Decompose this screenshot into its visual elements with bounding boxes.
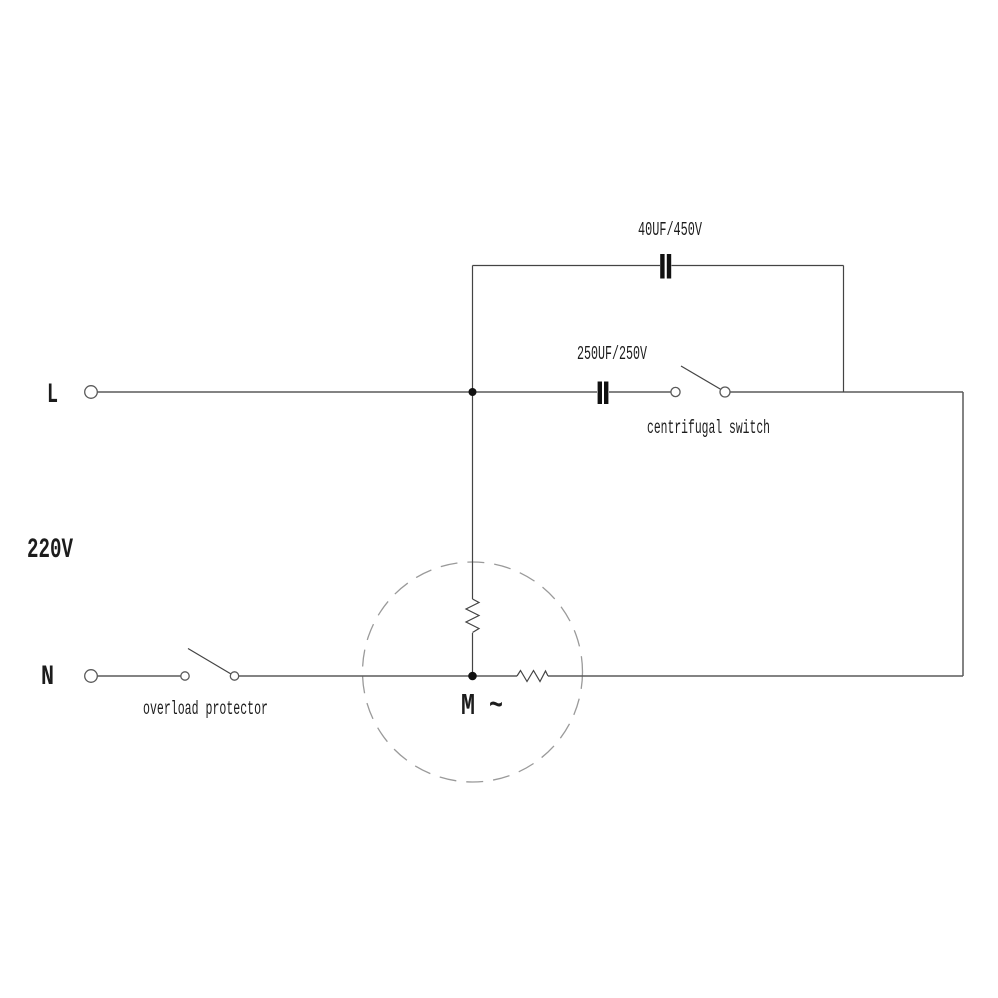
- start-capacitor-icon: [598, 382, 609, 405]
- run-capacitor-icon: [660, 254, 671, 279]
- centrifugal-switch-icon: [671, 366, 730, 397]
- neutral-terminal-label: N: [41, 662, 54, 693]
- main-winding-resistor-icon: [517, 671, 548, 682]
- circuit-canvas: L N 220V 40UF/450V 250UF/250V centrifuga…: [0, 0, 998, 998]
- overload-protector-label: overload protector: [143, 698, 268, 720]
- run-capacitor-label: 40UF/450V: [638, 219, 702, 241]
- circuit-diagram: L N 220V 40UF/450V 250UF/250V centrifuga…: [0, 0, 998, 998]
- start-capacitor-label: 250UF/250V: [577, 343, 647, 365]
- overload-protector-icon: [181, 649, 239, 681]
- line-terminal-icon: [85, 386, 98, 399]
- junction-dot-motor: [468, 672, 477, 681]
- line-terminal-label: L: [47, 380, 58, 411]
- junction-dot-phase: [469, 388, 477, 396]
- supply-voltage-label: 220V: [27, 535, 73, 566]
- start-winding-resistor-icon: [466, 599, 479, 633]
- neutral-terminal-icon: [85, 670, 98, 683]
- centrifugal-switch-label: centrifugal switch: [647, 417, 770, 439]
- run-capacitor-branch-wire: [473, 266, 844, 393]
- motor-label: M ~: [461, 689, 503, 724]
